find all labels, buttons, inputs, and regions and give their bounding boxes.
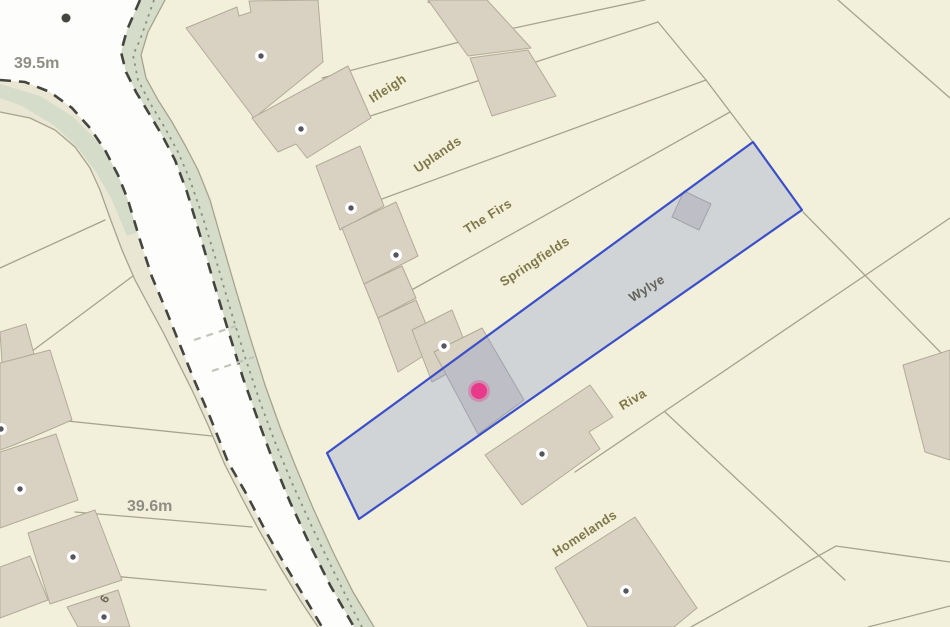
- spot-height-label: 39.6m: [127, 498, 172, 515]
- map-point-feature: [62, 14, 71, 23]
- location-marker[interactable]: [468, 380, 490, 402]
- map-canvas[interactable]: 39.5m 39.6m Ifleigh Uplands The Firs Spr…: [0, 0, 950, 627]
- spot-height-label: 39.5m: [14, 55, 59, 72]
- property-plot-map[interactable]: 39.5m 39.6m Ifleigh Uplands The Firs Spr…: [0, 0, 950, 627]
